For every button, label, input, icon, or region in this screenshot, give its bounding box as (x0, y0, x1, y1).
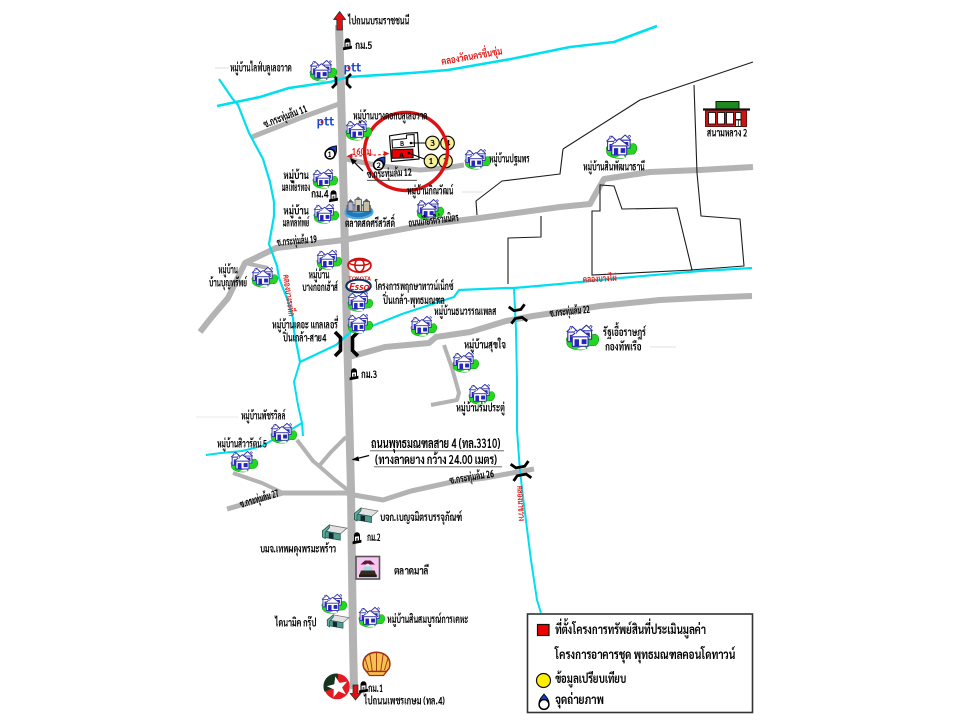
svg-text:มลเทียรทอง: มลเทียรทอง (282, 180, 311, 195)
svg-text:หมู่บ้านไลฟ์บลูเลอวาด: หมู่บ้านไลฟ์บลูเลอวาด (230, 59, 292, 75)
svg-text:หมู่บ้านพัชรวิลล์: หมู่บ้านพัชรวิลล์ (241, 409, 286, 424)
svg-text:ตลาดมาลี: ตลาดมาลี (394, 563, 429, 578)
svg-text:หมู่บ้านกิณวัฒน์: หมู่บ้านกิณวัฒน์ (407, 183, 454, 200)
svg-text:บมจ.เทพผดุงพรมะพร้าว: บมจ.เทพผดุงพรมะพร้าว (260, 541, 336, 559)
svg-text:ที่ตั้งโครงการทรัพย์สินที่ประเ: ที่ตั้งโครงการทรัพย์สินที่ประเมินมูลค่า (555, 617, 706, 638)
svg-text:ข้อมูลเปรียบเทียบ: ข้อมูลเปรียบเทียบ (555, 670, 627, 688)
svg-text:ไดนามิค กรุ๊ป: ไดนามิค กรุ๊ป (274, 614, 316, 633)
svg-text:1: 1 (429, 155, 434, 166)
svg-text:(ทางลาดยาง กว้าง 24.00 เมตร): (ทางลาดยาง กว้าง 24.00 เมตร) (375, 450, 497, 467)
svg-text:จุดถ่ายภาพ: จุดถ่ายภาพ (555, 691, 604, 710)
svg-text:โครงการพฤกษาทาวน์เน็กซ์: โครงการพฤกษาทาวน์เน็กซ์ (374, 278, 454, 294)
svg-text:3: 3 (430, 137, 435, 148)
svg-text:หมู่บ้านธนวรรณเพลส: หมู่บ้านธนวรรณเพลส (434, 303, 497, 320)
svg-text:กม.5: กม.5 (355, 39, 373, 53)
svg-text:หมู่บ้านสินสมบูรณ์การเคหะ: หมู่บ้านสินสมบูรณ์การเคหะ (387, 611, 468, 628)
svg-text:ไปถนนบรมราชชนนี: ไปถนนบรมราชชนนี (347, 13, 410, 28)
svg-text:คลองนาขวาง: คลองนาขวาง (515, 486, 528, 522)
svg-text:สนามหลวง 2: สนามหลวง 2 (707, 126, 747, 140)
svg-text:กม.4: กม.4 (311, 187, 329, 201)
svg-text:B: B (400, 139, 404, 148)
svg-text:กม.2: กม.2 (367, 530, 381, 545)
svg-text:มลทลทิพย์: มลทลทิพย์ (283, 215, 310, 230)
svg-text:ปิ่นเกล้า-สาย4: ปิ่นเกล้า-สาย4 (282, 328, 326, 345)
svg-text:หมู่บ้านปฐมพร: หมู่บ้านปฐมพร (489, 152, 530, 167)
svg-text:160 ม.: 160 ม. (352, 146, 373, 158)
svg-text:หมู่บ้านสินพัฒนาธานี: หมู่บ้านสินพัฒนาธานี (583, 159, 645, 176)
svg-text:Esso: Esso (348, 280, 370, 293)
svg-text:โครงการอาคารชุด พุทธมณฑลคอนโดท: โครงการอาคารชุด พุทธมณฑลคอนโดทาวน์ (554, 646, 736, 665)
svg-text:หมู่บ้านบางดอกบลูเลอวาด: หมู่บ้านบางดอกบลูเลอวาด (353, 109, 428, 123)
svg-text:หมู่บ้านร่มประตู่: หมู่บ้านร่มประตู่ (456, 400, 505, 416)
svg-text:1: 1 (328, 149, 332, 159)
svg-text:คลองบางไผ่: คลองบางไผ่ (582, 271, 617, 285)
svg-text:บางกอกเฮ้าส์: บางกอกเฮ้าส์ (302, 280, 339, 295)
svg-text:หมู่บ้านสิวารัตน์ 5: หมู่บ้านสิวารัตน์ 5 (217, 437, 267, 451)
svg-text:ptt: ptt (317, 113, 336, 129)
svg-text:บ้านบุญทรัพย์: บ้านบุญทรัพย์ (209, 276, 248, 291)
svg-text:ซ.กระทุ่มล้ม 12: ซ.กระทุ่มล้ม 12 (366, 165, 412, 182)
svg-text:หมู่บ้านสุขใจ: หมู่บ้านสุขใจ (464, 337, 506, 354)
svg-text:A: A (399, 150, 404, 159)
svg-text:กม.3: กม.3 (361, 368, 378, 382)
svg-text:บจก.เบญจมิตรบรรจุภัณฑ์: บจก.เบญจมิตรบรรจุภัณฑ์ (380, 509, 463, 526)
svg-text:ptt: ptt (344, 59, 363, 75)
svg-text:กองทัพเรือ: กองทัพเรือ (605, 339, 642, 354)
svg-text:ไปถนนเพชรเกษม (ทล.4): ไปถนนเพชรเกษม (ทล.4) (363, 693, 445, 708)
